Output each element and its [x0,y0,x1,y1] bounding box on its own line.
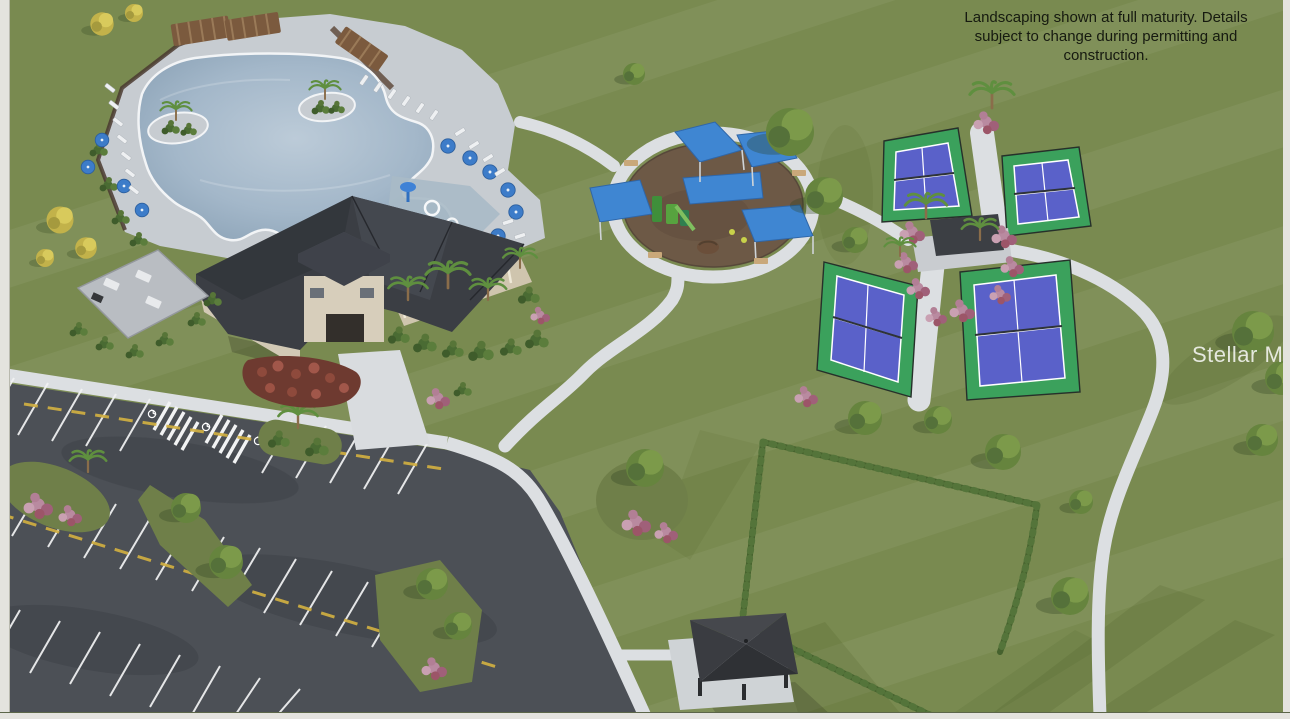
photo-border-left [0,0,10,719]
disclaimer-text: Landscaping shown at full maturity. Deta… [948,8,1264,66]
site-plan-art [0,0,1290,719]
photo-border-right [1283,0,1290,719]
stellar-mls-watermark: Stellar MLS [1192,342,1290,368]
aerial-rendering: Landscaping shown at full maturity. Deta… [0,0,1290,719]
court-4 [960,260,1080,400]
court-2 [1002,147,1091,236]
photo-border-bottom [0,713,1290,719]
